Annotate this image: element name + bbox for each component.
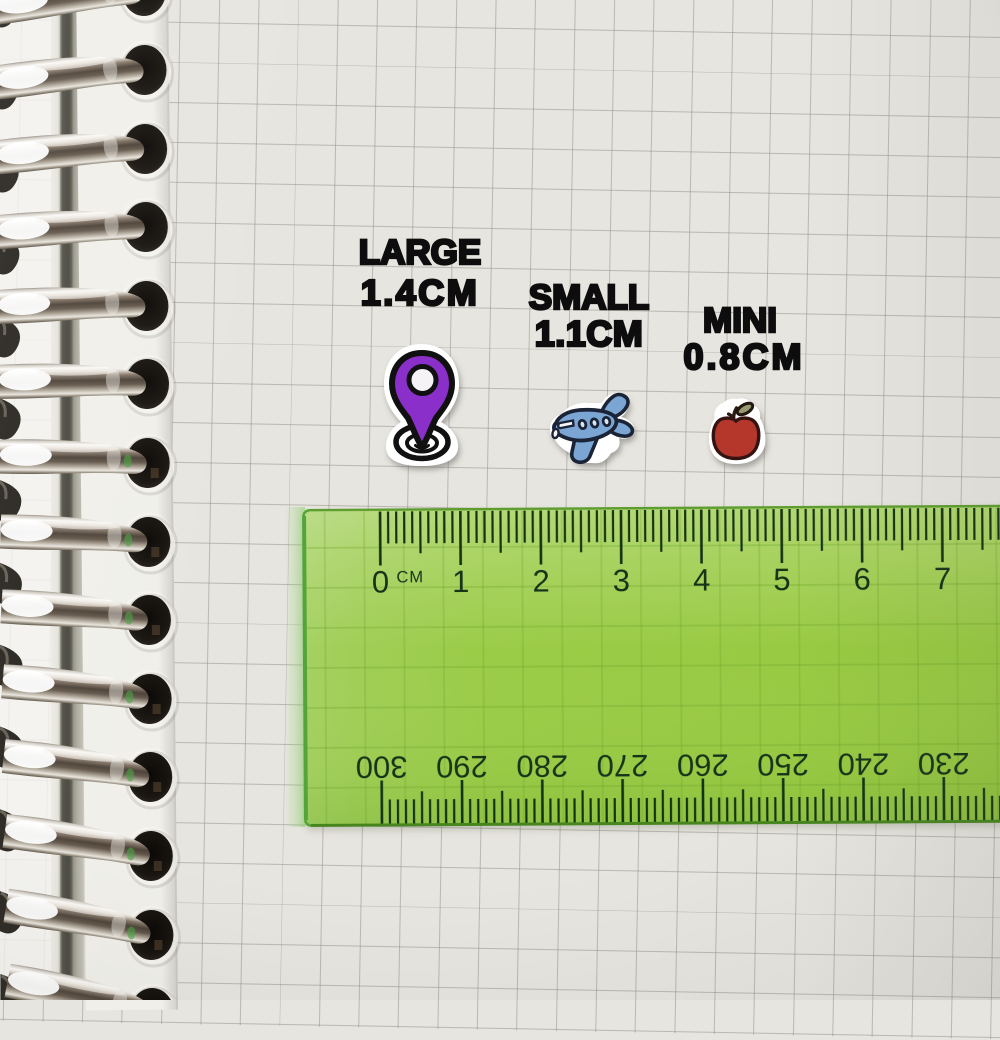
svg-text:1.4CM: 1.4CM: [361, 272, 480, 313]
svg-text:LARGE: LARGE: [359, 233, 482, 272]
svg-text:240: 240: [837, 746, 889, 781]
svg-text:250: 250: [757, 747, 809, 782]
svg-text:7: 7: [934, 561, 951, 596]
svg-text:300: 300: [356, 749, 408, 784]
svg-text:4: 4: [693, 563, 710, 598]
svg-text:260: 260: [677, 747, 729, 782]
svg-text:5: 5: [773, 562, 790, 597]
svg-text:1.1CM: 1.1CM: [535, 313, 644, 354]
svg-text:230: 230: [918, 746, 970, 781]
svg-text:280: 280: [516, 748, 568, 783]
svg-text:CM: CM: [396, 568, 424, 586]
svg-text:1: 1: [452, 564, 469, 599]
svg-text:290: 290: [436, 749, 488, 784]
svg-text:0.8CM: 0.8CM: [683, 336, 804, 377]
svg-text:0: 0: [372, 564, 389, 599]
svg-text:2: 2: [532, 563, 549, 598]
svg-text:270: 270: [597, 748, 649, 783]
svg-text:MINI: MINI: [703, 301, 777, 340]
svg-text:6: 6: [854, 562, 871, 597]
svg-text:3: 3: [613, 563, 630, 598]
svg-text:SMALL: SMALL: [529, 278, 650, 317]
